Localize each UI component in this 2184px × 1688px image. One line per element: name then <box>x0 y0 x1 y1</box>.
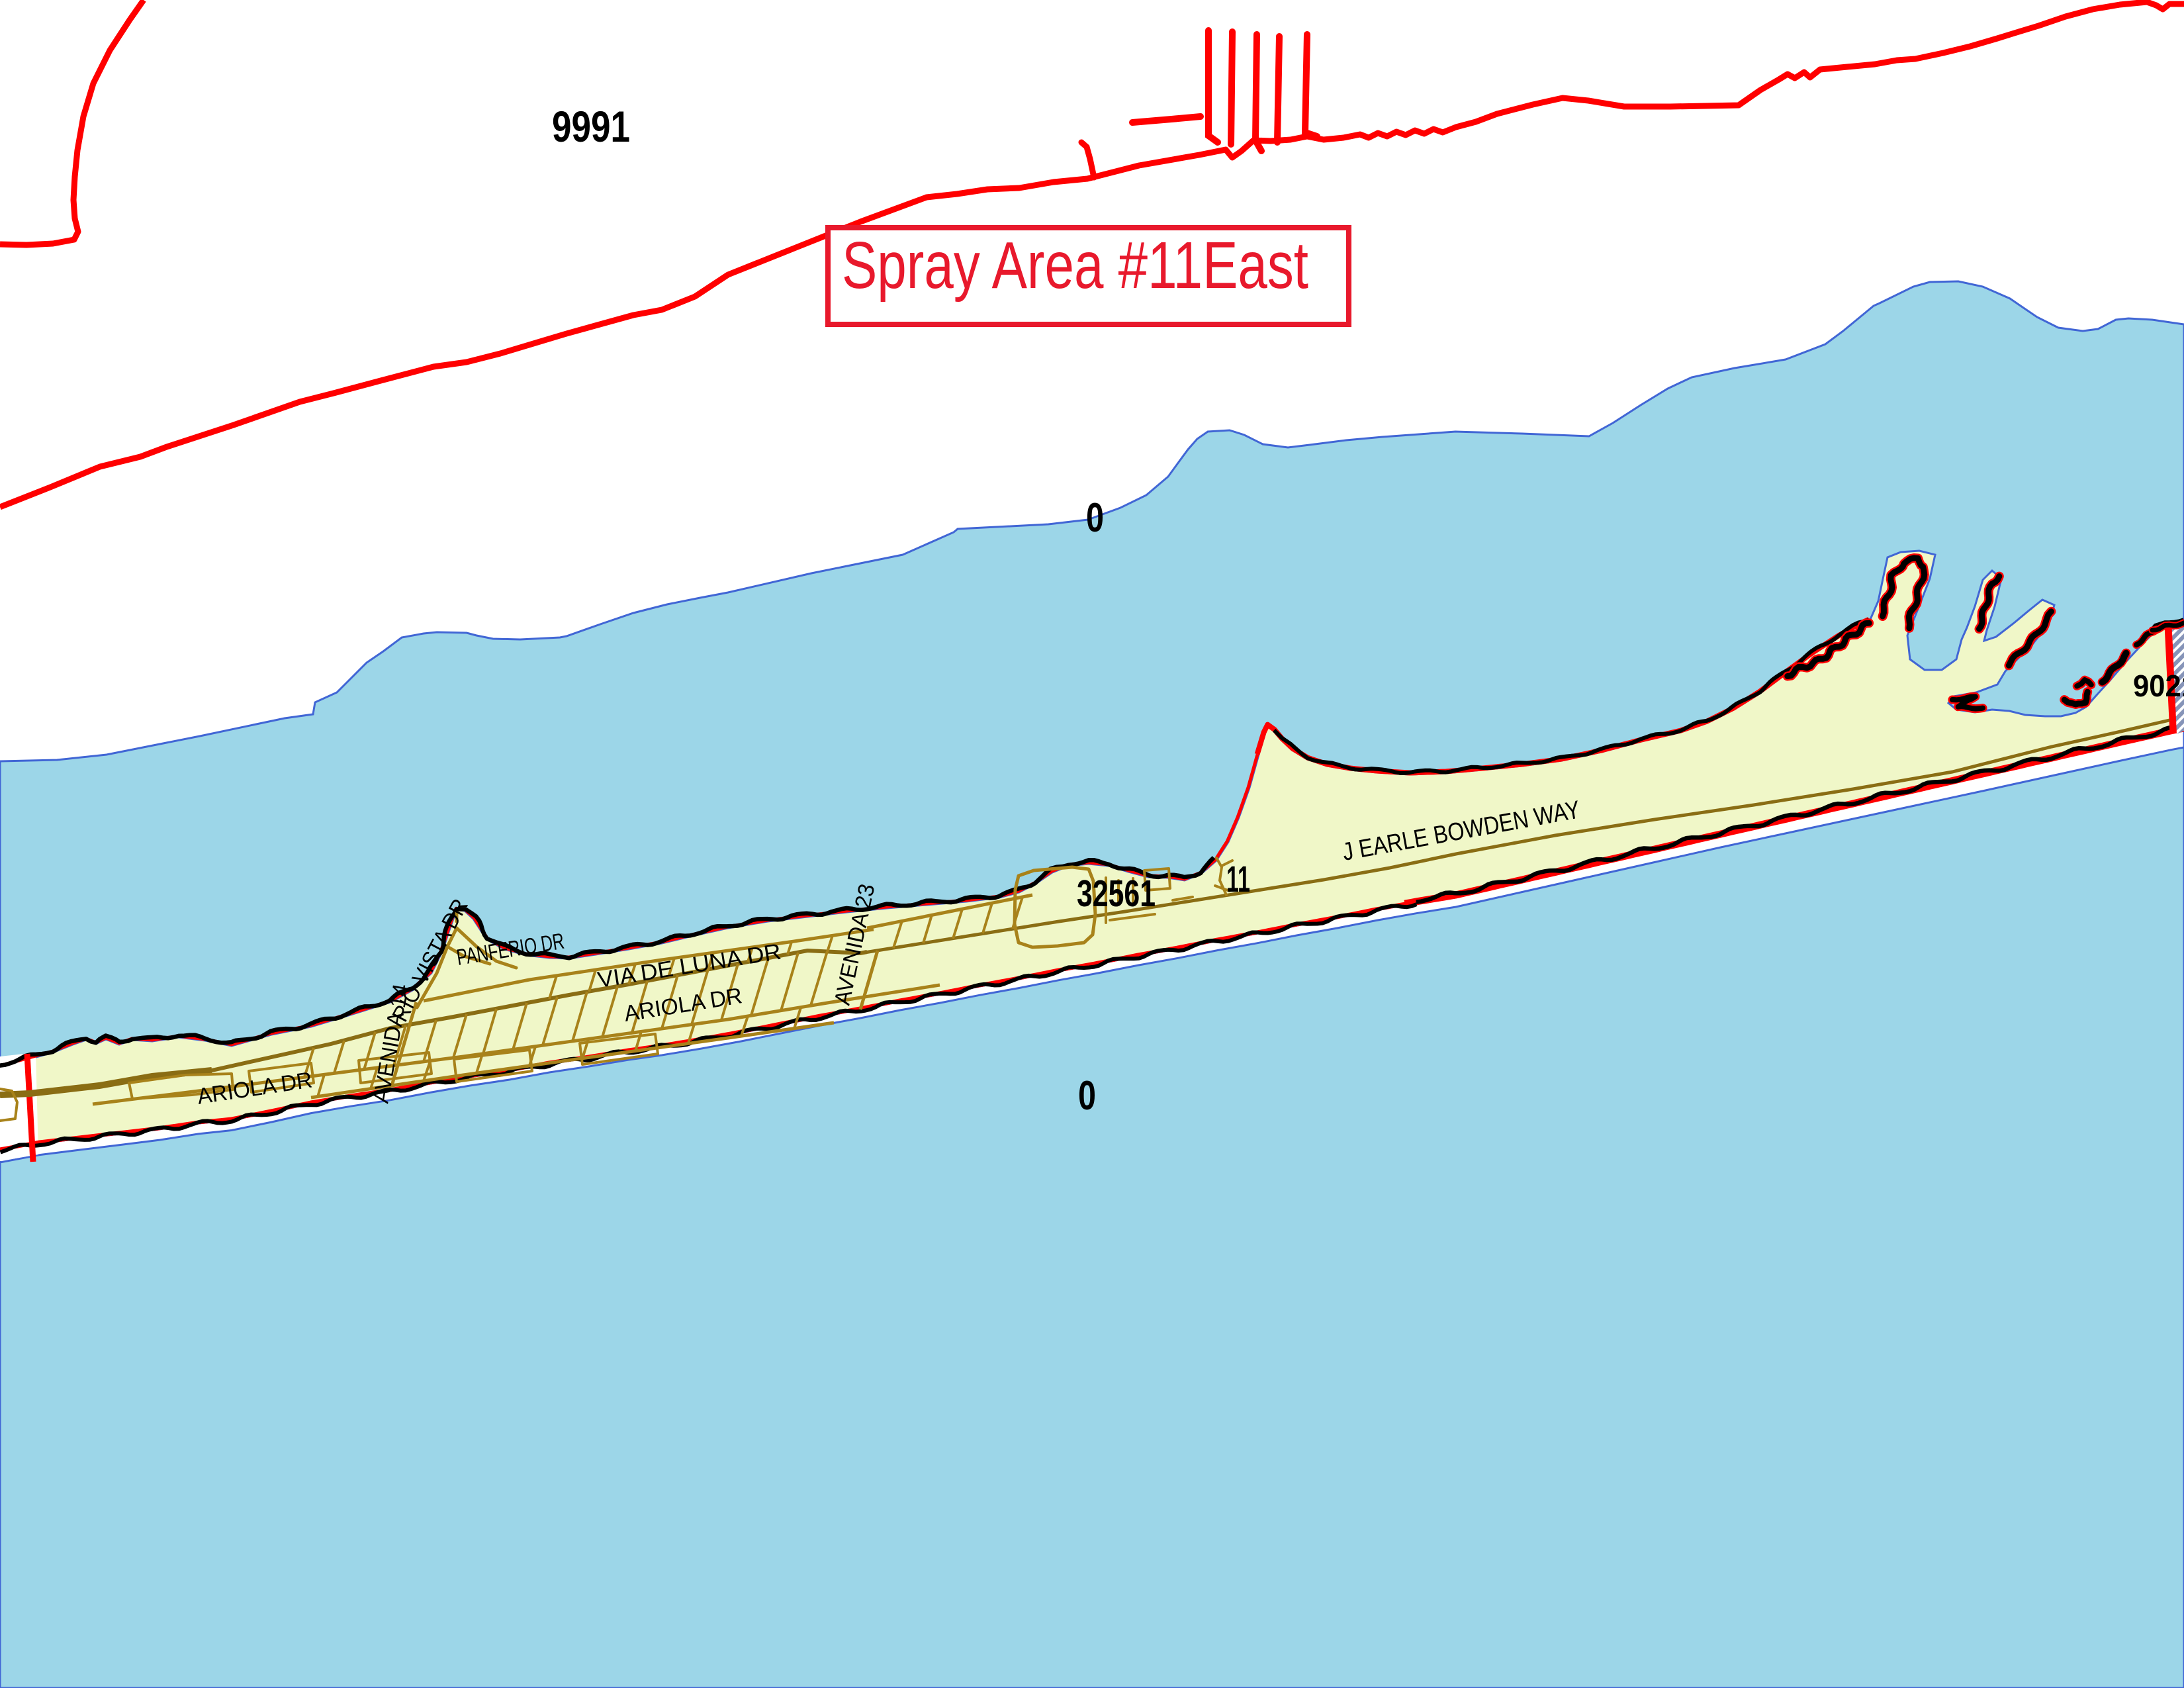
svg-text:11: 11 <box>1226 858 1250 900</box>
svg-text:0: 0 <box>1086 495 1104 541</box>
svg-text:9991: 9991 <box>552 102 630 151</box>
svg-text:0: 0 <box>1078 1073 1096 1119</box>
svg-text:9021: 9021 <box>2133 669 2184 703</box>
svg-text:Spray Area #11East: Spray Area #11East <box>842 228 1308 303</box>
svg-text:32561: 32561 <box>1077 872 1156 915</box>
